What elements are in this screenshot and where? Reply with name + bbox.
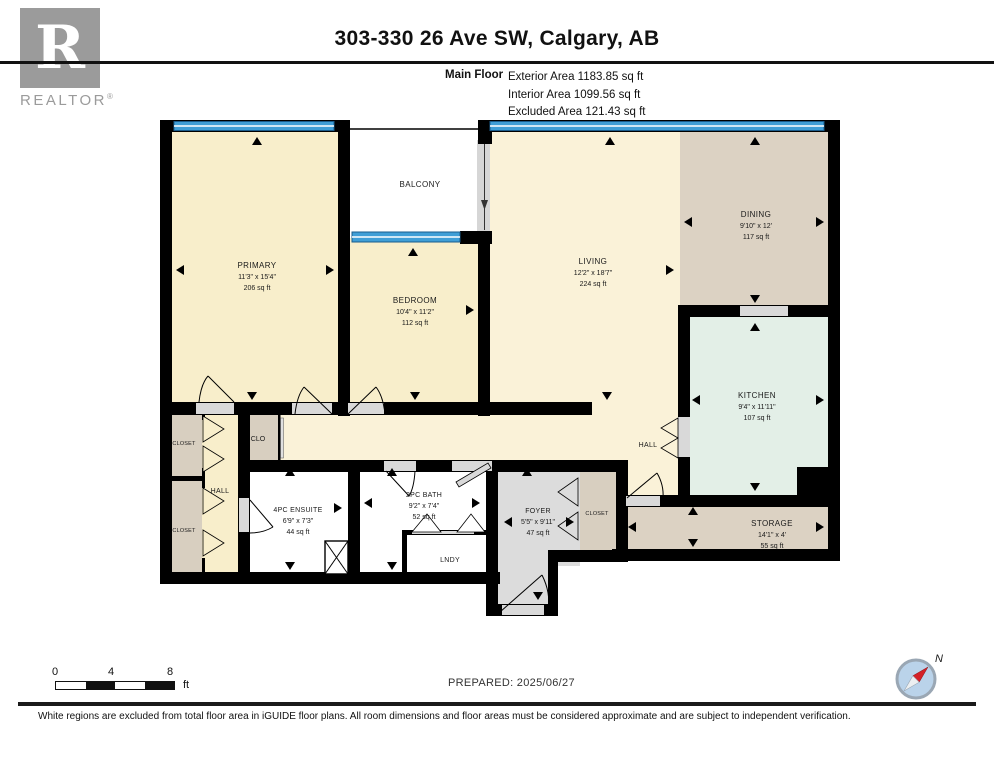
svg-text:47 sq ft: 47 sq ft bbox=[527, 530, 550, 537]
label-closet1: CLOSET bbox=[172, 441, 196, 447]
svg-text:9'4" x 11'11": 9'4" x 11'11" bbox=[738, 404, 776, 411]
room-bedroom-floor bbox=[344, 238, 484, 416]
label-balcony: BALCONY bbox=[399, 180, 440, 189]
disclaimer-text: White regions are excluded from total fl… bbox=[38, 711, 968, 722]
window-bedroom bbox=[352, 232, 460, 242]
svg-text:9'2" x 7'4": 9'2" x 7'4" bbox=[409, 503, 440, 510]
svg-text:112 sq ft: 112 sq ft bbox=[402, 320, 428, 327]
svg-text:LIVING: LIVING bbox=[579, 257, 608, 266]
room-floors bbox=[166, 127, 834, 616]
shower-box bbox=[325, 541, 348, 574]
room-primary-floor bbox=[166, 127, 340, 415]
room-storage-floor bbox=[622, 503, 834, 549]
compass: N bbox=[891, 648, 947, 709]
bottom-divider bbox=[18, 702, 976, 706]
svg-text:12'2" x 18'7": 12'2" x 18'7" bbox=[574, 270, 613, 277]
label-hall-center: HALL bbox=[639, 442, 658, 449]
prepared-date: PREPARED: 2025/06/27 bbox=[448, 677, 575, 689]
svg-text:BEDROOM: BEDROOM bbox=[393, 296, 437, 305]
label-hall-left: HALL bbox=[211, 488, 230, 495]
svg-text:5'5" x 9'11": 5'5" x 9'11" bbox=[521, 519, 555, 526]
svg-text:PRIMARY: PRIMARY bbox=[237, 261, 276, 270]
window-living-dining bbox=[490, 122, 824, 131]
fixtures bbox=[325, 541, 348, 574]
svg-text:2PC BATH: 2PC BATH bbox=[406, 492, 442, 499]
svg-text:55 sq ft: 55 sq ft bbox=[761, 543, 784, 550]
label-dining: DINING 9'10" x 12' 117 sq ft bbox=[740, 210, 772, 241]
label-closet-foyer: CLOSET bbox=[585, 511, 609, 517]
svg-text:224 sq ft: 224 sq ft bbox=[580, 281, 607, 288]
label-clo: CLO bbox=[251, 436, 266, 443]
svg-text:BALCONY: BALCONY bbox=[399, 180, 440, 189]
svg-text:KITCHEN: KITCHEN bbox=[738, 391, 776, 400]
svg-text:6'9" x 7'3": 6'9" x 7'3" bbox=[283, 518, 314, 525]
svg-text:STORAGE: STORAGE bbox=[751, 519, 793, 528]
label-closet2: CLOSET bbox=[172, 528, 196, 534]
scale-unit: ft bbox=[183, 679, 189, 691]
svg-text:FOYER: FOYER bbox=[525, 508, 551, 515]
svg-text:117 sq ft: 117 sq ft bbox=[743, 234, 769, 241]
svg-text:11'3" x 15'4": 11'3" x 15'4" bbox=[238, 274, 276, 281]
compass-north-label: N bbox=[935, 653, 943, 665]
room-hall-floor bbox=[248, 410, 690, 466]
svg-text:4PC ENSUITE: 4PC ENSUITE bbox=[273, 507, 322, 514]
svg-text:52 sq ft: 52 sq ft bbox=[413, 514, 436, 521]
scale-bar: 0 4 8 ft bbox=[55, 666, 215, 696]
label-laundry: LNDY bbox=[440, 557, 460, 564]
svg-text:44 sq ft: 44 sq ft bbox=[287, 529, 310, 536]
room-dining-floor bbox=[680, 127, 834, 317]
svg-text:14'1" x 4': 14'1" x 4' bbox=[758, 532, 786, 539]
hall-alcove-floor bbox=[622, 460, 678, 496]
svg-text:107 sq ft: 107 sq ft bbox=[744, 415, 771, 422]
scale-bar-segments bbox=[55, 681, 175, 690]
svg-text:DINING: DINING bbox=[741, 210, 771, 219]
window-primary bbox=[174, 122, 334, 131]
svg-text:10'4" x 11'2": 10'4" x 11'2" bbox=[396, 309, 434, 316]
floor-plan: PRIMARY 11'3" x 15'4" 206 sq ft BALCONY … bbox=[0, 0, 994, 768]
svg-text:9'10" x 12': 9'10" x 12' bbox=[740, 223, 772, 230]
svg-text:206 sq ft: 206 sq ft bbox=[244, 285, 271, 292]
